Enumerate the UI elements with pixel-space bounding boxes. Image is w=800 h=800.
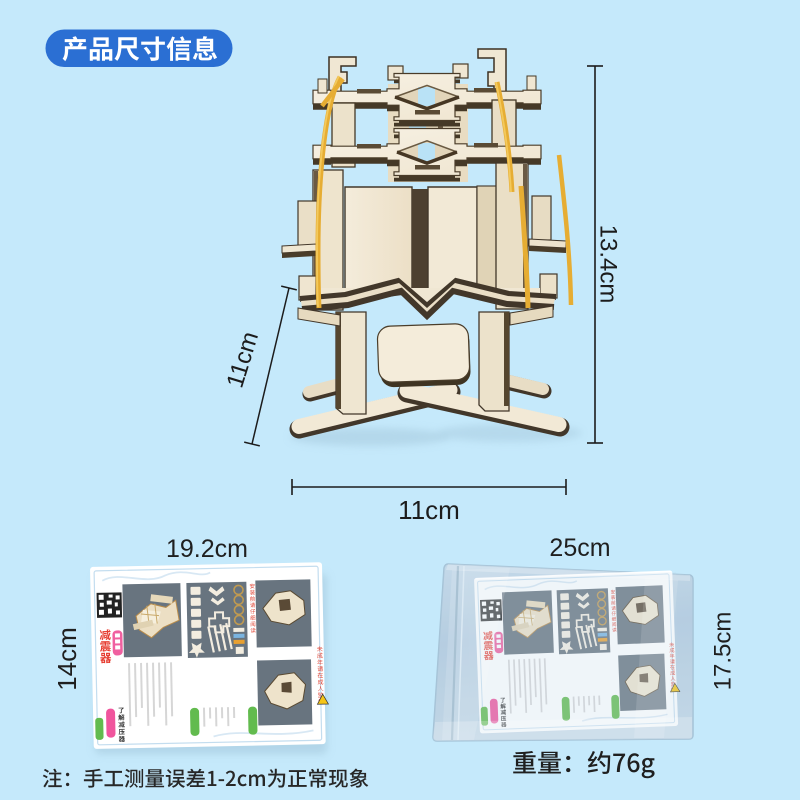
svg-text:11cm: 11cm	[398, 495, 460, 525]
svg-text:25cm: 25cm	[549, 534, 610, 562]
svg-text:19.2cm: 19.2cm	[166, 535, 248, 563]
svg-text:17.5cm: 17.5cm	[710, 612, 737, 691]
svg-text:14cm: 14cm	[52, 627, 82, 691]
svg-text:13.4cm: 13.4cm	[595, 225, 622, 304]
